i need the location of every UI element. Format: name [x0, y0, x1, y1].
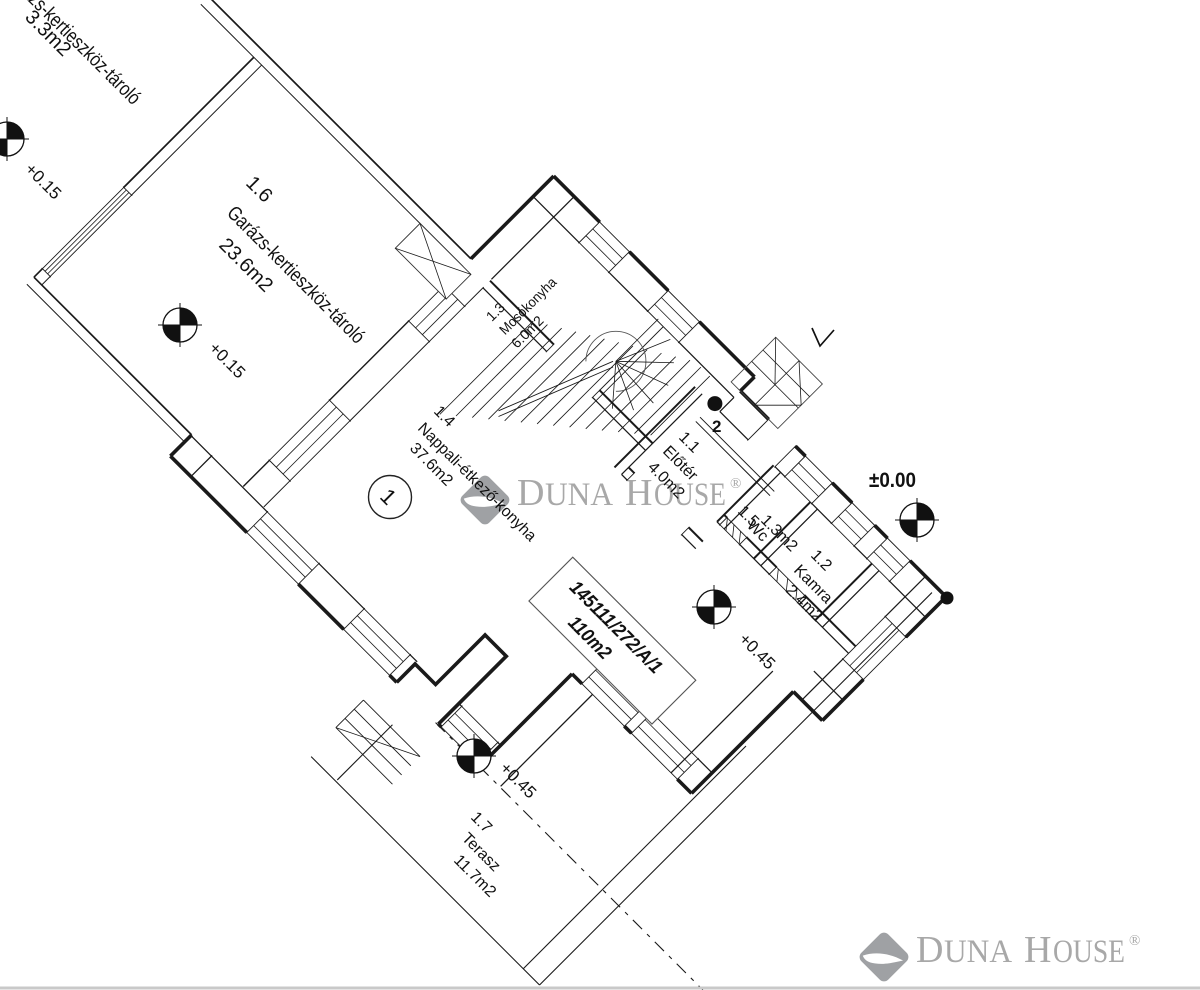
svg-text:D: D [517, 472, 544, 514]
svg-text:OUSE: OUSE [1053, 934, 1125, 970]
svg-text:®: ® [730, 476, 741, 492]
svg-text:®: ® [1129, 933, 1140, 949]
svg-text:H: H [1024, 929, 1051, 971]
svg-text:±0.00: ±0.00 [869, 469, 916, 492]
svg-text:UNA: UNA [545, 477, 613, 513]
svg-text:UNA: UNA [944, 934, 1012, 970]
svg-text:D: D [916, 929, 943, 971]
svg-text:2: 2 [712, 417, 721, 436]
